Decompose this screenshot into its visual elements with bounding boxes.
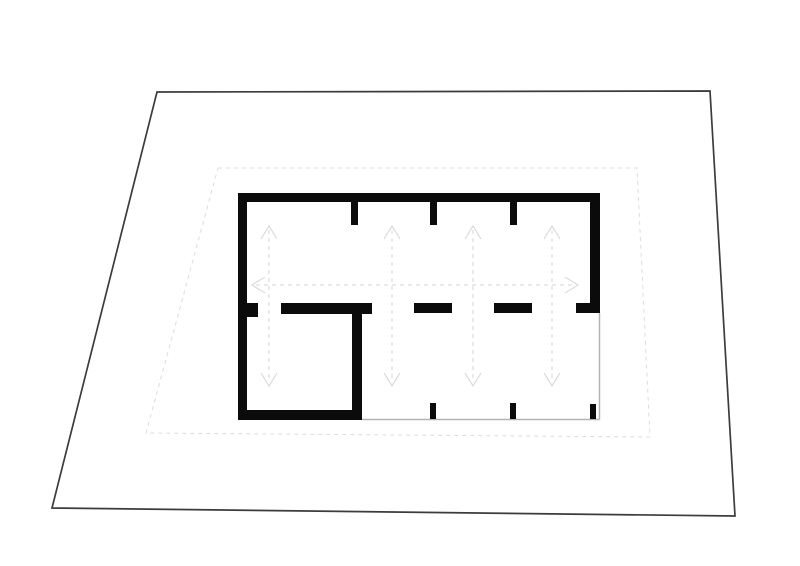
wall-mid-dash-1 xyxy=(414,303,452,313)
wall-mid-long xyxy=(281,303,372,314)
wall-stub-top-2 xyxy=(430,202,437,225)
wall-stub-bottom-2 xyxy=(510,403,516,419)
wall-stub-top-1 xyxy=(351,202,358,225)
wall-stub-bottom-1 xyxy=(430,403,436,419)
site-plan-canvas xyxy=(0,0,800,566)
wall-right xyxy=(590,193,600,313)
wall-mid-left-stub xyxy=(246,303,258,317)
wall-stub-bottom-3 xyxy=(590,404,596,419)
wall-top xyxy=(238,193,600,202)
wall-mid-right-stub xyxy=(576,303,590,313)
wall-stub-top-3 xyxy=(510,202,517,225)
wall-bottom-left-room xyxy=(238,410,362,420)
floor-plan-svg xyxy=(0,0,800,566)
site-boundary xyxy=(52,91,735,516)
wall-mid-dash-2 xyxy=(494,303,532,313)
wall-interior-vertical xyxy=(352,303,362,420)
wall-left xyxy=(238,193,247,420)
